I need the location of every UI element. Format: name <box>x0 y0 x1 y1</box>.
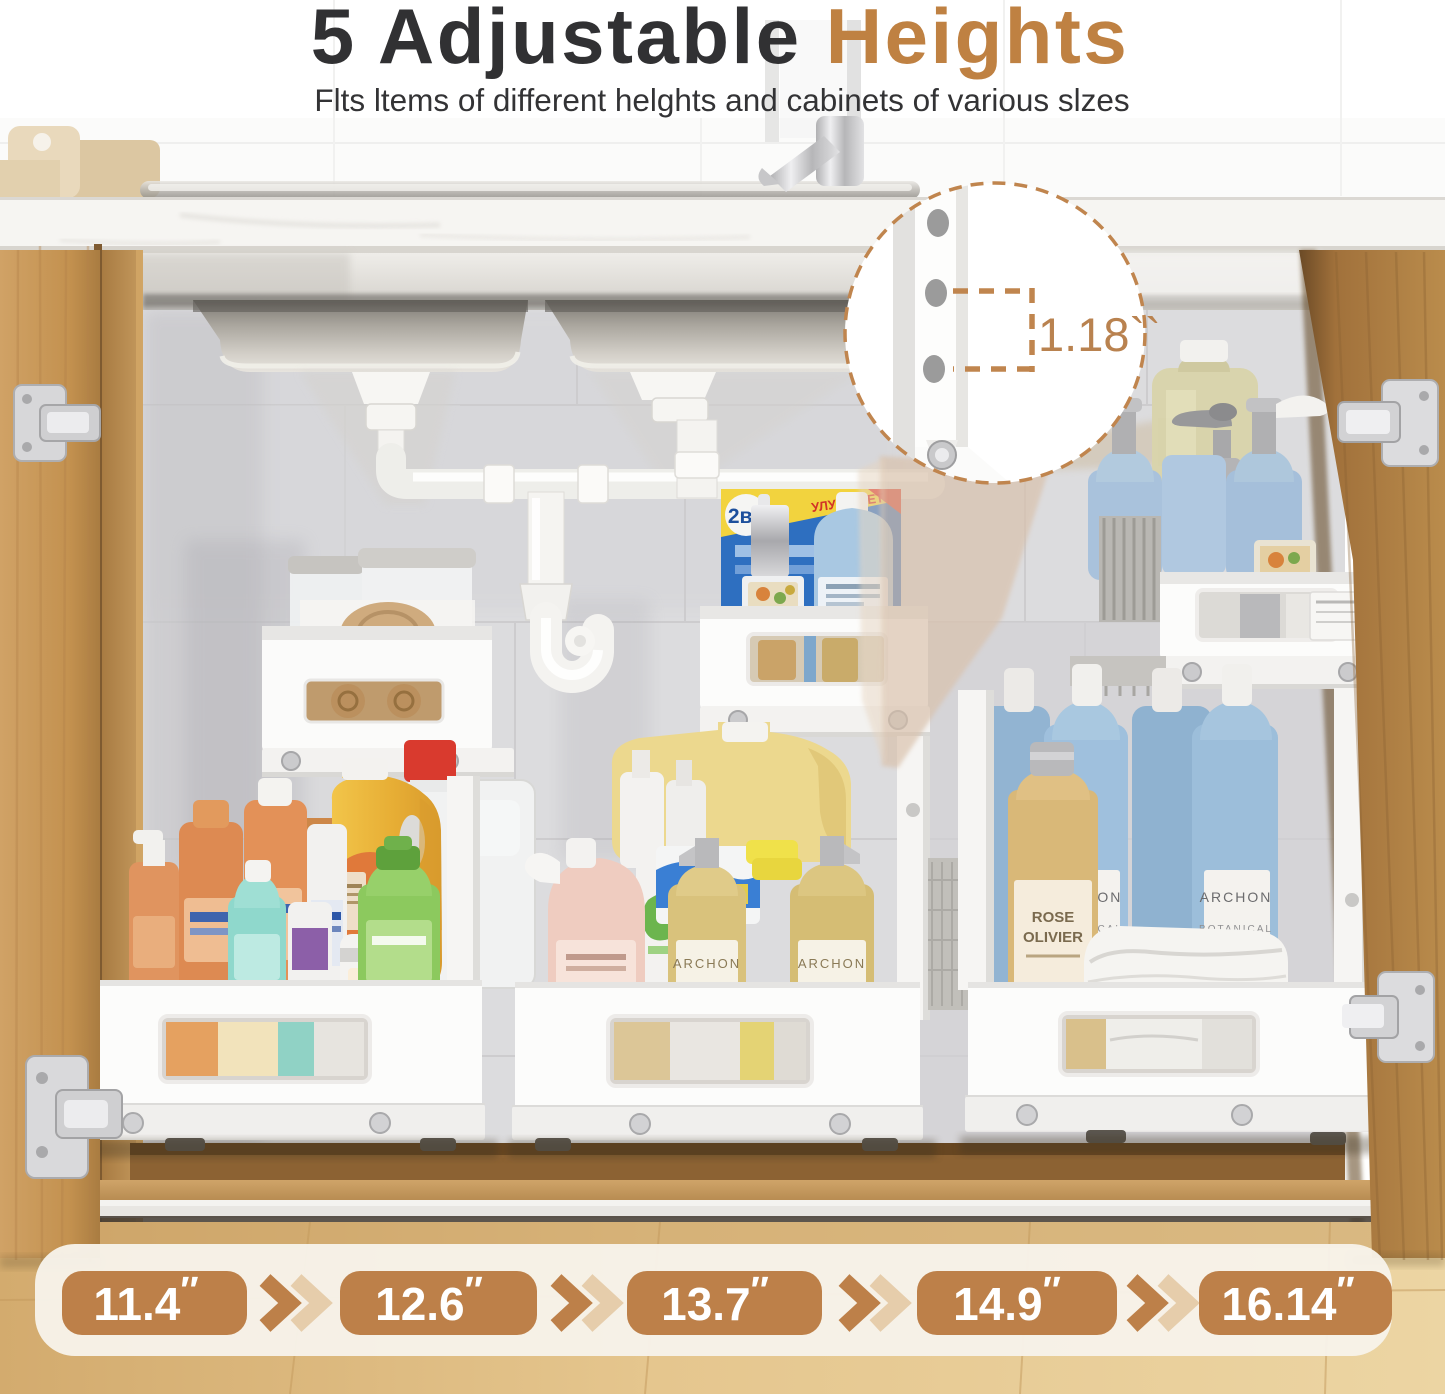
svg-text:ARCHON: ARCHON <box>798 956 866 971</box>
svg-text:ROSE: ROSE <box>1032 909 1075 926</box>
svg-text:OLIVIER: OLIVIER <box>1023 929 1083 946</box>
svg-text:Flts ltems of different helght: Flts ltems of different helghts and cabi… <box>314 82 1129 118</box>
svg-text:ARCHON: ARCHON <box>673 956 741 971</box>
svg-text:5 Adjustable Heights: 5 Adjustable Heights <box>311 0 1130 80</box>
svg-text:1.18``: 1.18`` <box>1038 308 1161 361</box>
svg-text:ARCHON: ARCHON <box>1200 889 1273 905</box>
svg-text:16.14′′: 16.14′′ <box>1221 1270 1354 1330</box>
